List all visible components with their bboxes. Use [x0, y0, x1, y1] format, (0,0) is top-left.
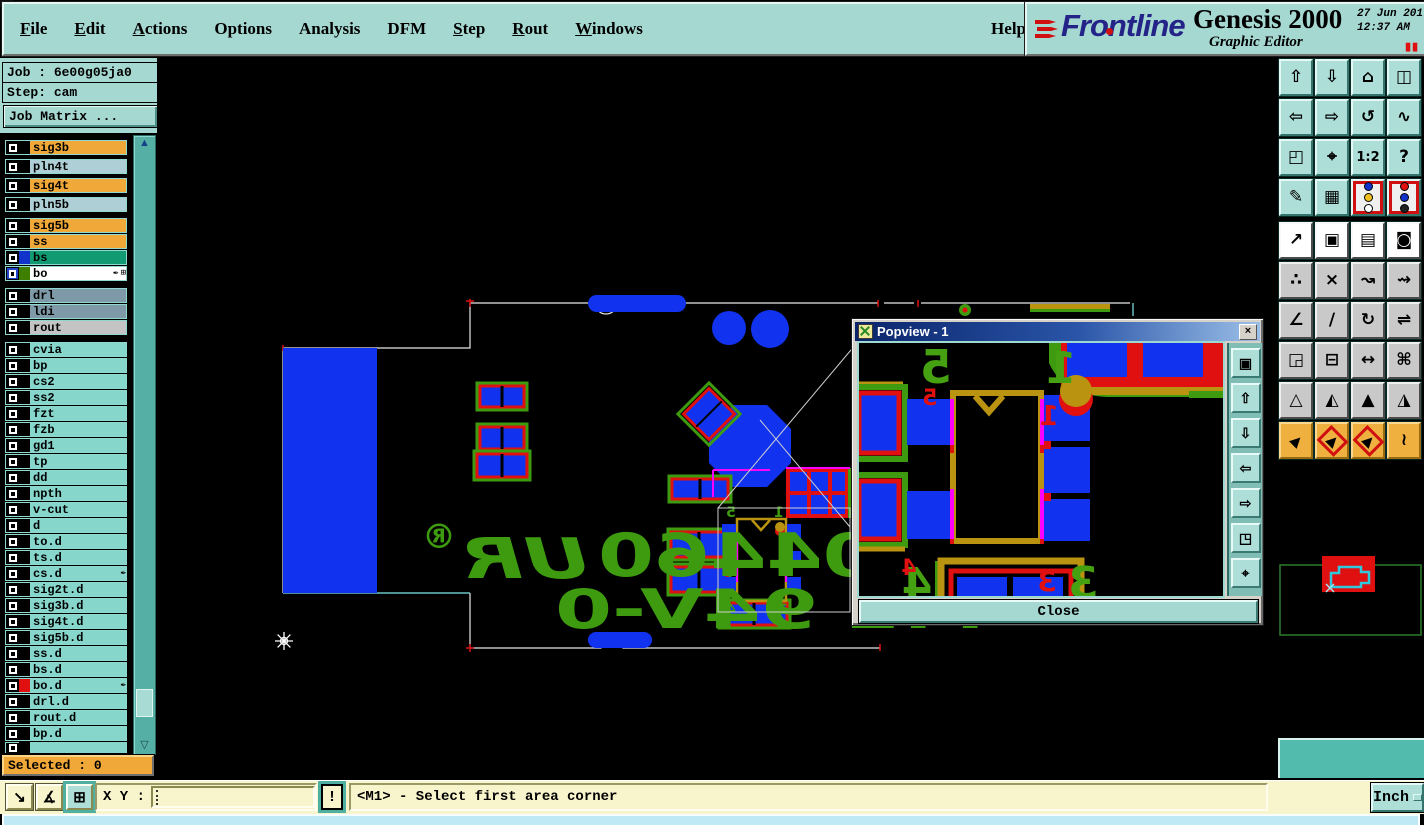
pad-swap-icon: ◲: [1288, 352, 1304, 369]
layer-row-bo[interactable]: bo✒⊞: [5, 266, 127, 281]
popview-zoom-out-button[interactable]: ◳: [1231, 523, 1261, 553]
editor-setup-icon: ✎: [1289, 189, 1303, 206]
frontline-logo: Frontline: [1061, 8, 1185, 44]
product-subtitle: Graphic Editor: [1209, 34, 1303, 51]
time-text: 12:37 AM: [1357, 21, 1424, 35]
layer-name: dd: [30, 471, 126, 484]
selected-count: Selected : 0: [2, 755, 154, 776]
layer-checkbox[interactable]: [7, 322, 18, 333]
menu-step[interactable]: Step: [453, 19, 485, 39]
message-box: <M1> - Select first area corner: [349, 783, 1268, 811]
layer-row-clipped[interactable]: [5, 742, 127, 753]
view-pan-down-icon: ⇩: [1325, 69, 1339, 86]
layer-checkbox[interactable]: [7, 290, 18, 301]
layer-checkbox[interactable]: [7, 360, 18, 371]
pad-array: [786, 468, 851, 518]
layer-color-swatch[interactable]: [19, 535, 30, 548]
layer-color-swatch[interactable]: [19, 289, 30, 302]
layer-row-cs.d[interactable]: cs.d✒: [5, 566, 127, 581]
layer-color-swatch[interactable]: [19, 487, 30, 500]
layer-row-ss.d[interactable]: ss.d: [5, 646, 127, 661]
layer-name: bp.d: [30, 727, 126, 740]
layer-row-bs[interactable]: bs: [5, 250, 127, 265]
layer-name: bo✒⊞: [30, 267, 126, 280]
view-pan-left-icon: ⇦: [1289, 109, 1303, 126]
layer-row-drl[interactable]: drl: [5, 288, 127, 303]
frontline-arrows-icon: [1035, 18, 1061, 42]
grid-icon: ⊞: [121, 269, 126, 278]
layer-name: d: [30, 519, 126, 532]
pin-5-label: 5: [726, 505, 736, 521]
layer-name: cs2: [30, 375, 126, 388]
layer-checkbox[interactable]: [7, 220, 18, 231]
select-net-button[interactable]: ≀: [1387, 422, 1421, 459]
view-pan-up-button[interactable]: ⇧: [1279, 59, 1313, 96]
arc-button[interactable]: ↻: [1351, 302, 1385, 339]
layer-name: ts.d: [30, 551, 126, 564]
layer-color-swatch[interactable]: [19, 267, 30, 280]
layer-list: sig3bpln4tsig4tpln5bsig5bssbsbo✒⊞drlldir…: [5, 140, 127, 753]
triangle-open-icon: △: [1289, 392, 1302, 409]
layer-checkbox[interactable]: [7, 408, 18, 419]
layer-name: bp: [30, 359, 126, 372]
layer-checkbox[interactable]: [7, 306, 18, 317]
layer-row-sig4t[interactable]: sig4t: [5, 178, 127, 193]
display-config-button-icon: [1364, 182, 1373, 213]
select-poly-button[interactable]: ▶: [1351, 422, 1385, 459]
layer-color-swatch[interactable]: [19, 663, 30, 676]
scrollbar-down-icon[interactable]: ▽: [134, 739, 155, 752]
erase-button[interactable]: ×: [1315, 262, 1349, 299]
view-pan-left-button[interactable]: ⇦: [1279, 99, 1313, 136]
layer-color-swatch[interactable]: [19, 711, 30, 724]
layer-checkbox[interactable]: [7, 648, 18, 659]
help-pointer-button[interactable]: ?: [1387, 139, 1421, 176]
view-home-button[interactable]: ⌂: [1351, 59, 1385, 96]
units-value: Inch: [1373, 789, 1409, 806]
select-pointer-button[interactable]: ▶: [1279, 422, 1313, 459]
layer-row-gd1[interactable]: gd1: [5, 438, 127, 453]
layer-row-pln5b[interactable]: pln5b: [5, 197, 127, 212]
step-value: cam: [54, 85, 77, 100]
popview-pan-up-button[interactable]: ⇧: [1231, 383, 1261, 413]
date-text: 27 Jun 201: [1357, 7, 1424, 21]
move-to-layer-button[interactable]: ↝: [1351, 262, 1385, 299]
popview-pan-right-button[interactable]: ⇨: [1231, 488, 1261, 518]
select-rect-icon: ▶: [1323, 432, 1341, 450]
line-break-button[interactable]: ⊟: [1315, 342, 1349, 379]
layer-row-bo.d[interactable]: bo.d✒: [5, 678, 127, 693]
zoom-center-button[interactable]: ⌖: [1315, 139, 1349, 176]
layer-row-bs.d[interactable]: bs.d: [5, 662, 127, 677]
job-field: Job : 6e00g05ja0: [2, 62, 158, 83]
layer-name: rout.d: [30, 711, 126, 724]
layer-checkbox[interactable]: [7, 161, 18, 172]
transform-icon: ↗: [1289, 232, 1303, 249]
layer-compare-icon: ▣: [1324, 232, 1340, 249]
layer-checkbox[interactable]: [7, 568, 18, 579]
pause-indicator-icon: ▮▮: [1405, 40, 1419, 53]
layer-color-swatch[interactable]: [19, 305, 30, 318]
layer-name: sig5b: [30, 219, 126, 232]
menu-windows[interactable]: Windows: [575, 19, 643, 39]
layer-row-dd[interactable]: dd: [5, 470, 127, 485]
layer-color-swatch[interactable]: [19, 455, 30, 468]
layer-row-cs2[interactable]: cs2: [5, 374, 127, 389]
layer-row-bp.d[interactable]: bp.d: [5, 726, 127, 741]
job-label: Job :: [7, 65, 54, 80]
layer-name: ss.d: [30, 647, 126, 660]
arc-icon: ↻: [1361, 312, 1375, 329]
transform-button[interactable]: ↗: [1279, 222, 1313, 259]
menu-help[interactable]: Help: [991, 19, 1026, 39]
angle-button[interactable]: ∠: [1279, 302, 1313, 339]
copy-to-layer-button[interactable]: ⇝: [1387, 262, 1421, 299]
layer-row-ts.d[interactable]: ts.d: [5, 550, 127, 565]
layer-row-sig5b[interactable]: sig5b: [5, 218, 127, 233]
popview-detach-button[interactable]: ▣: [1231, 348, 1261, 378]
layer-color-swatch[interactable]: [19, 407, 30, 420]
popview-close-x-button[interactable]: ×: [1239, 324, 1257, 340]
view-split-icon: ◫: [1396, 69, 1412, 86]
pin-1-label: 1: [774, 505, 784, 521]
move-to-layer-icon: ↝: [1361, 272, 1375, 289]
svg-text:®: ®: [422, 517, 456, 557]
menu-file[interactable]: File: [20, 19, 47, 39]
layer-name: npth: [30, 487, 126, 500]
menu-bar: FileEditActionsOptionsAnalysisDFMStepRou…: [2, 2, 1052, 56]
layer-color-swatch[interactable]: [19, 615, 30, 628]
mirror-button[interactable]: ⇌: [1387, 302, 1421, 339]
layer-row-rout.d[interactable]: rout.d: [5, 710, 127, 725]
copy-to-layer-icon: ⇝: [1397, 272, 1411, 289]
layer-checkbox[interactable]: [7, 180, 18, 191]
popview-pan-down-button[interactable]: ⇩: [1231, 418, 1261, 448]
layer-color-swatch[interactable]: [19, 251, 30, 264]
layer-name: tp: [30, 455, 126, 468]
layer-row-ss[interactable]: ss: [5, 234, 127, 249]
layer-color-swatch[interactable]: [19, 198, 30, 211]
job-matrix-button[interactable]: Job Matrix ...: [3, 105, 158, 128]
menu-edit[interactable]: Edit: [74, 19, 105, 39]
angle-icon: ∠: [1288, 312, 1303, 329]
angle-mode-button[interactable]: ∡: [36, 784, 63, 810]
view-previous-button[interactable]: ↺: [1351, 99, 1385, 136]
layer-name: cvia: [30, 343, 126, 356]
layer-row-sig3b.d[interactable]: sig3b.d: [5, 598, 127, 613]
step-field: Step: cam: [2, 82, 158, 103]
layer-row-cvia[interactable]: cvia: [5, 342, 127, 357]
serpentine-icon: ∿: [1397, 109, 1411, 126]
brand-panel: Frontline Genesis 2000 27 Jun 201 12:37 …: [1025, 2, 1424, 56]
layer-checkbox[interactable]: [7, 536, 18, 547]
layer-row-bp[interactable]: bp: [5, 358, 127, 373]
pen-icon: ✒: [113, 269, 118, 278]
scrollbar-thumb[interactable]: [136, 689, 153, 717]
layer-name: drl.d: [30, 695, 126, 708]
layer-checkbox[interactable]: [7, 344, 18, 355]
text-caret: [156, 790, 160, 805]
layer-color-swatch[interactable]: [19, 471, 30, 484]
erase-icon: ×: [1325, 272, 1339, 289]
layer-color-swatch[interactable]: [19, 567, 30, 580]
view-pan-down-button[interactable]: ⇩: [1315, 59, 1349, 96]
popview-system-icon[interactable]: [858, 324, 873, 339]
layer-color-swatch[interactable]: [19, 391, 30, 404]
layer-color-swatch[interactable]: [19, 679, 30, 692]
units-dropdown[interactable]: Inch: [1371, 783, 1424, 812]
layer-color-swatch[interactable]: [19, 631, 30, 644]
layer-row-d[interactable]: d: [5, 518, 127, 533]
layer-color-swatch[interactable]: [19, 503, 30, 516]
triangle-filled-icon: ▲: [1361, 392, 1374, 409]
layer-checkbox[interactable]: [7, 664, 18, 675]
layer-color-swatch[interactable]: [19, 219, 30, 232]
svg-text:5: 5: [922, 386, 937, 411]
menu-actions[interactable]: Actions: [133, 19, 188, 39]
layer-color-swatch[interactable]: [19, 551, 30, 564]
layer-name: pln5b: [30, 198, 126, 211]
layer-color-swatch[interactable]: [19, 321, 30, 334]
layer-color-swatch[interactable]: [19, 375, 30, 388]
layer-checkbox[interactable]: [7, 504, 18, 515]
layer-row-fzb[interactable]: fzb: [5, 422, 127, 437]
zoom-fit-icon: ◰: [1288, 149, 1304, 166]
popview-titlebar[interactable]: Popview - 1 ×: [855, 322, 1260, 341]
menu-dfm[interactable]: DFM: [387, 19, 426, 39]
measure-distance-button[interactable]: ↔: [1351, 342, 1385, 379]
layer-checkbox[interactable]: [7, 743, 18, 754]
grid-mode-button[interactable]: ⊞: [66, 784, 93, 810]
layer-color-swatch[interactable]: [19, 141, 30, 154]
pen-icon: ✒: [121, 681, 126, 690]
layer-row-npth[interactable]: npth: [5, 486, 127, 501]
layer-name: pln4t: [30, 160, 126, 173]
layer-name: gd1: [30, 439, 126, 452]
layer-color-swatch[interactable]: [19, 423, 30, 436]
surface-button[interactable]: ⌘: [1387, 342, 1421, 379]
zoom-ratio-button[interactable]: 1:2: [1351, 139, 1385, 176]
layer-name: ldi: [30, 305, 126, 318]
layer-checkbox[interactable]: [7, 472, 18, 483]
bottom-progress-strip: [2, 814, 1420, 825]
slope-icon: ∕: [1329, 312, 1335, 329]
triangle-open-button[interactable]: △: [1279, 382, 1313, 419]
status-bar: ↘∡⊞ X Y : ! <M1> - Select first area cor…: [0, 780, 1424, 814]
layer-color-swatch[interactable]: [19, 235, 30, 248]
grid-toggle-button[interactable]: ▦: [1315, 179, 1349, 216]
layer-row-v-cut[interactable]: v-cut: [5, 502, 127, 517]
layer-name: [30, 742, 126, 754]
layer-checkbox[interactable]: [7, 440, 18, 451]
popview-toolbar: ▣⇧⇩⇦⇨◳⌖: [1227, 343, 1262, 596]
layer-color-swatch[interactable]: [19, 160, 30, 173]
layer-row-ldi[interactable]: ldi: [5, 304, 127, 319]
layer-compare-button[interactable]: ▣: [1315, 222, 1349, 259]
right-toolbar: ⇧⇩⌂◫⇦⇨↺∿◰⌖1:2?✎▦↗▣▤◙∴×↝⇝∠∕↻⇌◲⊟↔⌘△◭▲◮▶▶▶≀: [1279, 59, 1424, 462]
layer-name: sig3b: [30, 141, 126, 154]
job-value: 6e00g05ja0: [54, 65, 132, 80]
layer-row-sig2t.d[interactable]: sig2t.d: [5, 582, 127, 597]
layer-name: sig5b.d: [30, 631, 126, 644]
popview-zoom-in-button[interactable]: ⌖: [1231, 558, 1261, 588]
menu-rout[interactable]: Rout: [512, 19, 548, 39]
layer-checkbox[interactable]: [7, 199, 18, 210]
layer-row-sig3b[interactable]: sig3b: [5, 140, 127, 155]
layer-color-swatch[interactable]: [19, 599, 30, 612]
zoom-center-icon: ⌖: [1327, 149, 1337, 166]
layer-color-swatch[interactable]: [19, 343, 30, 356]
cursor-star-icon: [275, 632, 293, 650]
layer-checkbox[interactable]: [7, 236, 18, 247]
grid-toggle-icon: ▦: [1324, 189, 1340, 206]
display-config-button[interactable]: [1351, 179, 1385, 216]
product-title: Genesis 2000: [1193, 4, 1342, 35]
editor-setup-button[interactable]: ✎: [1279, 179, 1313, 216]
layer-name: sig3b.d: [30, 599, 126, 612]
view-split-button[interactable]: ◫: [1387, 59, 1421, 96]
slope-button[interactable]: ∕: [1315, 302, 1349, 339]
layer-checkbox[interactable]: [7, 616, 18, 627]
triangle-right-icon: ◮: [1397, 392, 1410, 409]
pad-capture-button[interactable]: ◙: [1387, 222, 1421, 259]
alert-button[interactable]: !: [321, 784, 343, 810]
menu-options[interactable]: Options: [214, 19, 272, 39]
copper-pour: [283, 348, 377, 593]
layer-row-fzt[interactable]: fzt: [5, 406, 127, 421]
layer-name: cs.d✒: [30, 567, 126, 580]
genesis-2000-app: FileEditActionsOptionsAnalysisDFMStepRou…: [0, 0, 1424, 825]
layer-checkbox[interactable]: [7, 252, 18, 263]
triangle-left-button[interactable]: ◭: [1315, 382, 1349, 419]
triangle-filled-button[interactable]: ▲: [1351, 382, 1385, 419]
select-net-icon: ≀: [1401, 432, 1407, 449]
pad-swap-button[interactable]: ◲: [1279, 342, 1313, 379]
overview-panel[interactable]: [1278, 485, 1424, 737]
layer-name: bs.d: [30, 663, 126, 676]
svg-text:1: 1: [1039, 399, 1058, 432]
layer-checkbox[interactable]: [7, 584, 18, 595]
popview-canvas[interactable]: 5 5 1 1 3 3 4 4: [857, 341, 1225, 598]
zoom-ratio-icon: 1:2: [1356, 151, 1379, 164]
serpentine-button[interactable]: ∿: [1387, 99, 1421, 136]
xy-entry-group: X Y :: [95, 783, 317, 811]
zoom-fit-button[interactable]: ◰: [1279, 139, 1313, 176]
net-highlight-button[interactable]: ∴: [1279, 262, 1313, 299]
layer-name: rout: [30, 321, 126, 334]
popview-pan-left-button[interactable]: ⇦: [1231, 453, 1261, 483]
layer-checkbox[interactable]: [7, 142, 18, 153]
select-rect-button[interactable]: ▶: [1315, 422, 1349, 459]
layer-color-swatch[interactable]: [19, 519, 30, 532]
layer-row-sig5b.d[interactable]: sig5b.d: [5, 630, 127, 645]
pad-capture-icon: ◙: [1396, 232, 1413, 249]
layer-row-rout[interactable]: rout: [5, 320, 127, 335]
layer-checkbox[interactable]: [7, 552, 18, 563]
line-break-icon: ⊟: [1325, 352, 1339, 369]
layer-color-swatch[interactable]: [19, 359, 30, 372]
measure-distance-icon: ↔: [1361, 352, 1375, 369]
layer-row-sig4t.d[interactable]: sig4t.d: [5, 614, 127, 629]
prompt-message: <M1> - Select first area corner: [351, 789, 617, 805]
popview-title: Popview - 1: [877, 324, 949, 339]
layer-checkbox[interactable]: [7, 728, 18, 739]
layer-checkbox[interactable]: [7, 632, 18, 643]
layer-color-swatch[interactable]: [19, 439, 30, 452]
layer-checkbox[interactable]: [7, 456, 18, 467]
scrollbar-up-icon[interactable]: ▲: [134, 137, 155, 150]
menu-items: FileEditActionsOptionsAnalysisDFMStepRou…: [20, 19, 670, 39]
layer-checkbox[interactable]: [7, 712, 18, 723]
layer-row-to.d[interactable]: to.d: [5, 534, 127, 549]
select-poly-icon: ▶: [1359, 432, 1377, 450]
layer-row-pln4t[interactable]: pln4t: [5, 159, 127, 174]
layer-checkbox[interactable]: [7, 392, 18, 403]
coordinate-readout: X = 2.438846" Y = -4.428969": [1278, 738, 1424, 778]
frontline-o-dot-icon: [1106, 28, 1113, 35]
layer-name: ss2: [30, 391, 126, 404]
view-previous-icon: ↺: [1361, 109, 1375, 126]
layer-checkbox[interactable]: [7, 600, 18, 611]
layer-checkbox[interactable]: [7, 268, 18, 279]
layer-name: sig4t.d: [30, 615, 126, 628]
layer-color-swatch[interactable]: [19, 695, 30, 708]
layer-name: drl: [30, 289, 126, 302]
menu-analysis[interactable]: Analysis: [299, 19, 360, 39]
layer-name: v-cut: [30, 503, 126, 516]
layer-name: sig2t.d: [30, 583, 126, 596]
svg-text:4: 4: [901, 556, 916, 581]
layer-checkbox[interactable]: [7, 680, 18, 691]
layer-name: fzt: [30, 407, 126, 420]
layer-color-swatch[interactable]: [19, 583, 30, 596]
layer-row-ss2[interactable]: ss2: [5, 390, 127, 405]
layer-row-drl.d[interactable]: drl.d: [5, 694, 127, 709]
layer-checkbox[interactable]: [7, 424, 18, 435]
layer-list-scrollbar[interactable]: ▲ ▽: [133, 135, 156, 755]
layer-name: to.d: [30, 535, 126, 548]
xy-input[interactable]: [151, 786, 315, 808]
step-label: Step:: [7, 85, 54, 100]
ruler-icon: ▤: [1360, 232, 1376, 249]
select-pointer-icon: ▶: [1287, 432, 1305, 450]
svg-text:1: 1: [1046, 343, 1077, 394]
triangle-left-icon: ◭: [1325, 392, 1338, 409]
view-pan-right-button[interactable]: ⇨: [1315, 99, 1349, 136]
popview-close-button[interactable]: Close: [859, 600, 1258, 623]
view-pan-up-icon: ⇧: [1289, 69, 1303, 86]
layer-color-swatch[interactable]: [19, 727, 30, 740]
help-pointer-icon: ?: [1399, 149, 1409, 166]
layer-checkbox[interactable]: [7, 520, 18, 531]
snap-config-button[interactable]: [1387, 179, 1421, 216]
layer-checkbox[interactable]: [7, 376, 18, 387]
svg-text:3: 3: [1068, 558, 1099, 596]
layer-color-swatch[interactable]: [19, 742, 30, 754]
triangle-right-button[interactable]: ◮: [1387, 382, 1421, 419]
layer-checkbox[interactable]: [7, 696, 18, 707]
layer-row-tp[interactable]: tp: [5, 454, 127, 469]
ruler-button[interactable]: ▤: [1351, 222, 1385, 259]
layer-checkbox[interactable]: [7, 488, 18, 499]
layer-color-swatch[interactable]: [19, 647, 30, 660]
net-highlight-icon: ∴: [1290, 272, 1302, 289]
layer-color-swatch[interactable]: [19, 179, 30, 192]
option-menu-icon: [1413, 794, 1422, 801]
svg-text:3: 3: [1037, 565, 1056, 596]
measure-mode-button[interactable]: ↘: [6, 784, 33, 810]
layer-name: bs: [30, 251, 126, 264]
